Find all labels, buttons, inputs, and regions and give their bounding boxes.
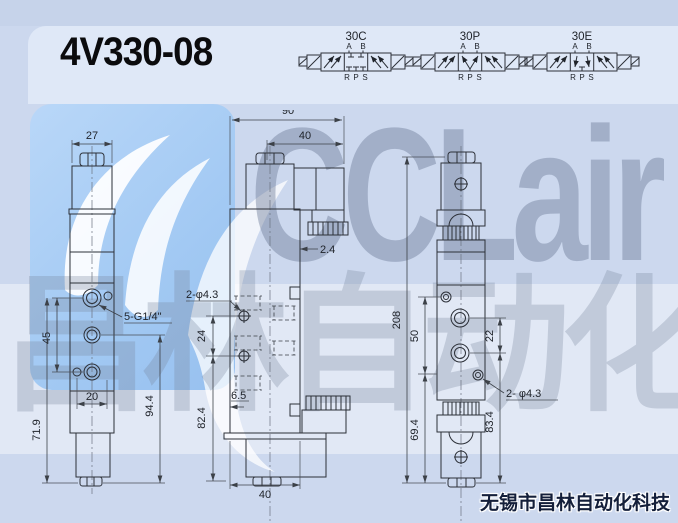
port-p-label: P — [467, 73, 472, 82]
rear-holes-label: 2- φ4.3 — [506, 388, 541, 400]
dim-front-port-width: 20 — [86, 391, 98, 403]
dim-side-total-width: 90 — [282, 105, 294, 117]
dim-side-hole-pitch: 24 — [196, 330, 208, 342]
dim-side-body-height: 82.4 — [196, 407, 208, 428]
port-b-label: B — [474, 42, 479, 51]
dim-front-body-height: 94.4 — [144, 395, 156, 416]
port-s-label: S — [476, 73, 481, 82]
port-a-label: A — [460, 42, 466, 51]
dim-front-width: 27 — [86, 130, 98, 142]
valve-symbol-30p: 30P A B R P S — [413, 31, 527, 82]
port-p-label: P — [353, 73, 358, 82]
port-r-label: R — [458, 73, 464, 82]
side-holes-label: 2-φ4.3 — [186, 289, 218, 301]
dim-side-offset: 2.4 — [320, 244, 335, 256]
port-r-label: R — [344, 73, 350, 82]
port-a-label: A — [572, 42, 578, 51]
dim-rear-lower-height: 69.4 — [409, 419, 421, 440]
port-a-label: A — [346, 42, 352, 51]
dim-side-coil-width: 40 — [299, 130, 311, 142]
dim-rear-right-height: 83.4 — [484, 411, 496, 432]
technical-drawing: 30C A B R P S 30P A B — [0, 0, 678, 523]
dim-front-lower-height: 71.9 — [31, 419, 43, 440]
port-s-label: S — [588, 73, 593, 82]
dim-rear-hole-pitch: 50 — [409, 330, 421, 342]
valve-symbol-30e: 30E A B R P S — [525, 31, 639, 82]
dim-side-edge-offset: 6.5 — [231, 390, 246, 402]
thread-spec-label: 5-G1/4" — [124, 311, 162, 323]
valve-symbol-30c: 30C A B R P S — [299, 31, 413, 82]
dim-rear-total-height: 208 — [391, 311, 403, 329]
datasheet-page: 昌林自动化 CCLair 4V330-08 30C A B — [0, 0, 678, 523]
dim-side-body-width: 40 — [259, 489, 271, 501]
port-b-label: B — [586, 42, 591, 51]
dim-rear-port-pitch: 22 — [484, 330, 496, 342]
port-b-label: B — [360, 42, 365, 51]
port-p-label: P — [579, 73, 584, 82]
rear-view: 208 50 69.4 22 83.4 2- φ4.3 — [391, 146, 558, 523]
front-view: 27 45 71.9 94.4 20 5-G1/4" — [31, 130, 172, 494]
side-view: 2.4 90 40 — [186, 105, 350, 523]
company-name: 无锡市昌林自动化科技 — [480, 488, 670, 515]
port-r-label: R — [570, 73, 576, 82]
port-s-label: S — [362, 73, 367, 82]
